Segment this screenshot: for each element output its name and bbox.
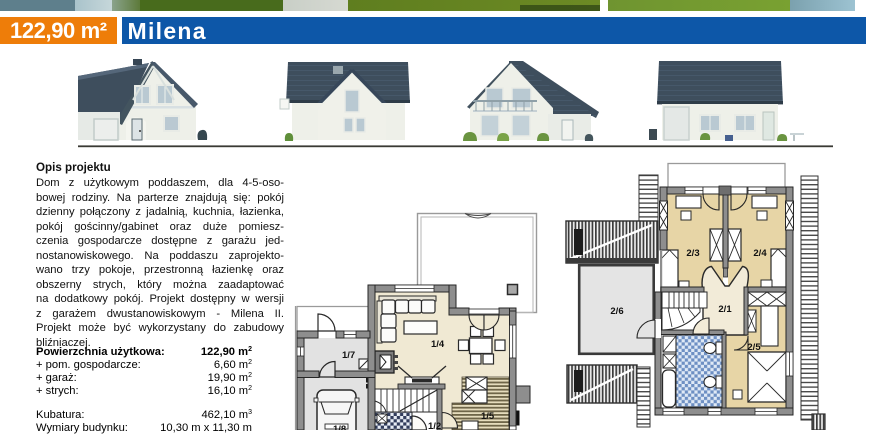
svg-text:1/4: 1/4 bbox=[431, 339, 445, 350]
svg-text:2/1: 2/1 bbox=[718, 304, 732, 315]
svg-text:2/4: 2/4 bbox=[753, 248, 767, 259]
svg-text:1/8: 1/8 bbox=[333, 424, 346, 430]
svg-text:1/5: 1/5 bbox=[481, 411, 495, 422]
svg-text:2/6: 2/6 bbox=[610, 306, 623, 317]
svg-text:1/7: 1/7 bbox=[342, 350, 355, 361]
svg-text:1/2: 1/2 bbox=[428, 421, 441, 430]
svg-text:2/3: 2/3 bbox=[686, 248, 699, 259]
svg-text:2/5: 2/5 bbox=[747, 342, 761, 353]
